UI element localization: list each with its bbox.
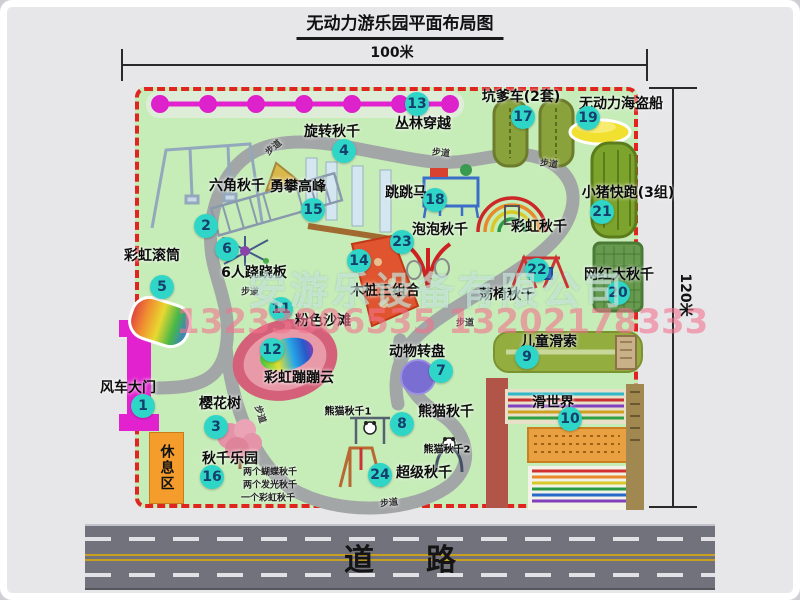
poi-label: 彩虹蹦蹦云 bbox=[264, 367, 334, 387]
poi-label: 熊猫秋千 bbox=[418, 401, 474, 421]
road-label: 道路 bbox=[292, 535, 508, 579]
rest-area-label: 休息区 bbox=[157, 444, 177, 492]
poi-label: 粉色沙滩 bbox=[295, 310, 351, 330]
poi-number-badge: 24 bbox=[368, 463, 392, 487]
poi-label: 6人跷跷板 bbox=[221, 262, 287, 282]
poi-number-badge: 10 bbox=[558, 407, 582, 431]
poi-number-badge: 17 bbox=[511, 105, 535, 129]
poi-number-badge: 14 bbox=[347, 249, 371, 273]
poi-label: 旋转秋千 bbox=[304, 121, 360, 141]
poi-label: 勇攀高峰 bbox=[270, 176, 326, 196]
walkway-label: 步道 bbox=[241, 285, 259, 298]
map-label: 彩虹秋千 bbox=[511, 216, 567, 236]
poi-label: 小猪快跑(3组) bbox=[582, 182, 675, 202]
map-label: 熊猫秋千2 bbox=[424, 441, 471, 456]
map-label: 一个彩虹秋千 bbox=[241, 491, 295, 504]
poi-label: 樱花树 bbox=[199, 393, 241, 413]
walkway-label: 步道 bbox=[379, 495, 398, 510]
poi-number-badge: 23 bbox=[390, 230, 414, 254]
poi-label: 荡椅秋千 bbox=[479, 284, 535, 304]
poi-number-badge: 18 bbox=[423, 188, 447, 212]
poi-label: 动物转盘 bbox=[389, 341, 445, 361]
walkway-label: 步道 bbox=[539, 155, 559, 170]
poi-number-badge: 2 bbox=[194, 214, 218, 238]
page-title: 无动力游乐园平面布局图 bbox=[297, 9, 504, 40]
poi-number-badge: 5 bbox=[150, 275, 174, 299]
rest-area: 休息区 bbox=[149, 432, 184, 504]
poi-label: 六角秋千 bbox=[209, 175, 265, 195]
poi-number-badge: 8 bbox=[390, 412, 414, 436]
dimension-tick bbox=[646, 49, 648, 81]
walkway-label: 步道 bbox=[431, 145, 450, 160]
poi-number-badge: 19 bbox=[576, 106, 600, 130]
poi-label: 丛林穿越 bbox=[395, 113, 451, 133]
poi-label: 跳跳马 bbox=[385, 182, 427, 202]
screenshot-root: 无动力游乐园平面布局图 100米 120米 bbox=[0, 0, 800, 600]
poi-number-badge: 3 bbox=[204, 415, 228, 439]
dimension-width-line bbox=[122, 64, 648, 66]
poi-number-badge: 21 bbox=[590, 200, 614, 224]
poi-number-badge: 13 bbox=[405, 92, 429, 116]
poi-number-badge: 4 bbox=[332, 139, 356, 163]
poi-number-badge: 1 bbox=[131, 394, 155, 418]
dimension-height-label: 120米 bbox=[676, 273, 696, 316]
dimension-tick bbox=[121, 49, 123, 81]
poi-number-badge: 16 bbox=[200, 465, 224, 489]
poi-number-badge: 20 bbox=[606, 281, 630, 305]
dimension-tick bbox=[649, 506, 697, 508]
dimension-tick bbox=[649, 87, 697, 89]
poi-number-badge: 11 bbox=[269, 297, 293, 321]
poi-number-badge: 6 bbox=[215, 237, 239, 261]
poi-number-badge: 7 bbox=[429, 359, 453, 383]
dimension-width-label: 100米 bbox=[370, 42, 413, 62]
dimension-height-line bbox=[672, 87, 674, 508]
road: 道路 bbox=[85, 524, 715, 590]
poi-number-badge: 22 bbox=[525, 258, 549, 282]
walkway-label: 步道 bbox=[456, 316, 474, 329]
poi-label: 彩虹滚筒 bbox=[124, 245, 180, 265]
poi-number-badge: 9 bbox=[515, 345, 539, 369]
poi-label: 木桩三组合 bbox=[350, 280, 420, 300]
poi-number-badge: 12 bbox=[260, 338, 284, 362]
poi-label: 坑爹车(2套) bbox=[482, 86, 561, 106]
poi-label: 泡泡秋千 bbox=[412, 219, 468, 239]
map-label: 两个发光秋千 bbox=[243, 478, 297, 491]
poi-label: 超级秋千 bbox=[396, 462, 452, 482]
poi-number-badge: 15 bbox=[301, 198, 325, 222]
map-label: 熊猫秋千1 bbox=[325, 403, 372, 418]
